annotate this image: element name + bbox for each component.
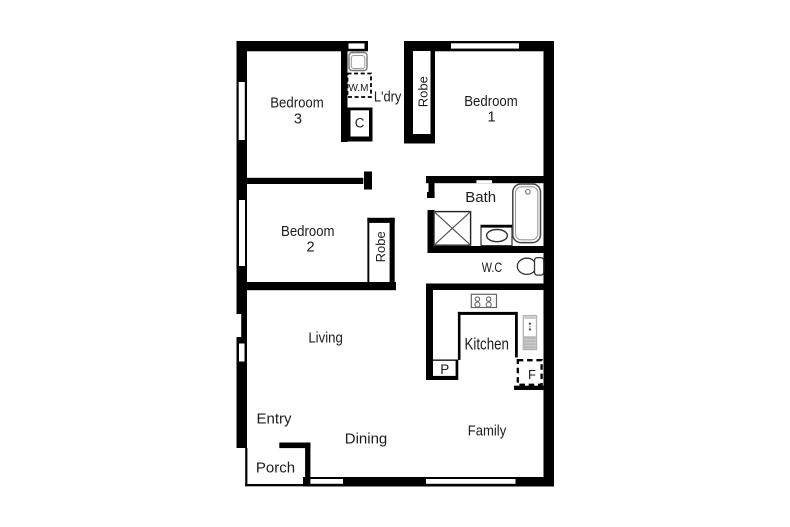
svg-text:Bath: Bath [465, 189, 496, 206]
svg-text:Bedroom: Bedroom [281, 224, 335, 240]
svg-text:Dining: Dining [345, 431, 388, 448]
svg-text:P: P [440, 362, 449, 377]
svg-text:W.C: W.C [482, 259, 503, 275]
svg-text:Robe: Robe [415, 76, 430, 107]
svg-text:Porch: Porch [256, 459, 295, 476]
svg-text:W.M: W.M [349, 83, 369, 94]
svg-text:Bedroom: Bedroom [464, 94, 518, 110]
svg-text:1: 1 [487, 109, 495, 125]
svg-text:Kitchen: Kitchen [465, 335, 509, 354]
svg-text:F: F [528, 367, 536, 382]
svg-text:C: C [355, 115, 365, 130]
svg-text:L'dry: L'dry [374, 89, 402, 106]
svg-text:Bedroom: Bedroom [270, 95, 324, 111]
svg-text:Family: Family [468, 423, 507, 440]
svg-text:Entry: Entry [256, 411, 292, 428]
svg-text:3: 3 [294, 111, 302, 127]
svg-text:2: 2 [306, 240, 314, 256]
svg-text:Living: Living [308, 330, 343, 347]
svg-text:Robe: Robe [373, 231, 388, 262]
